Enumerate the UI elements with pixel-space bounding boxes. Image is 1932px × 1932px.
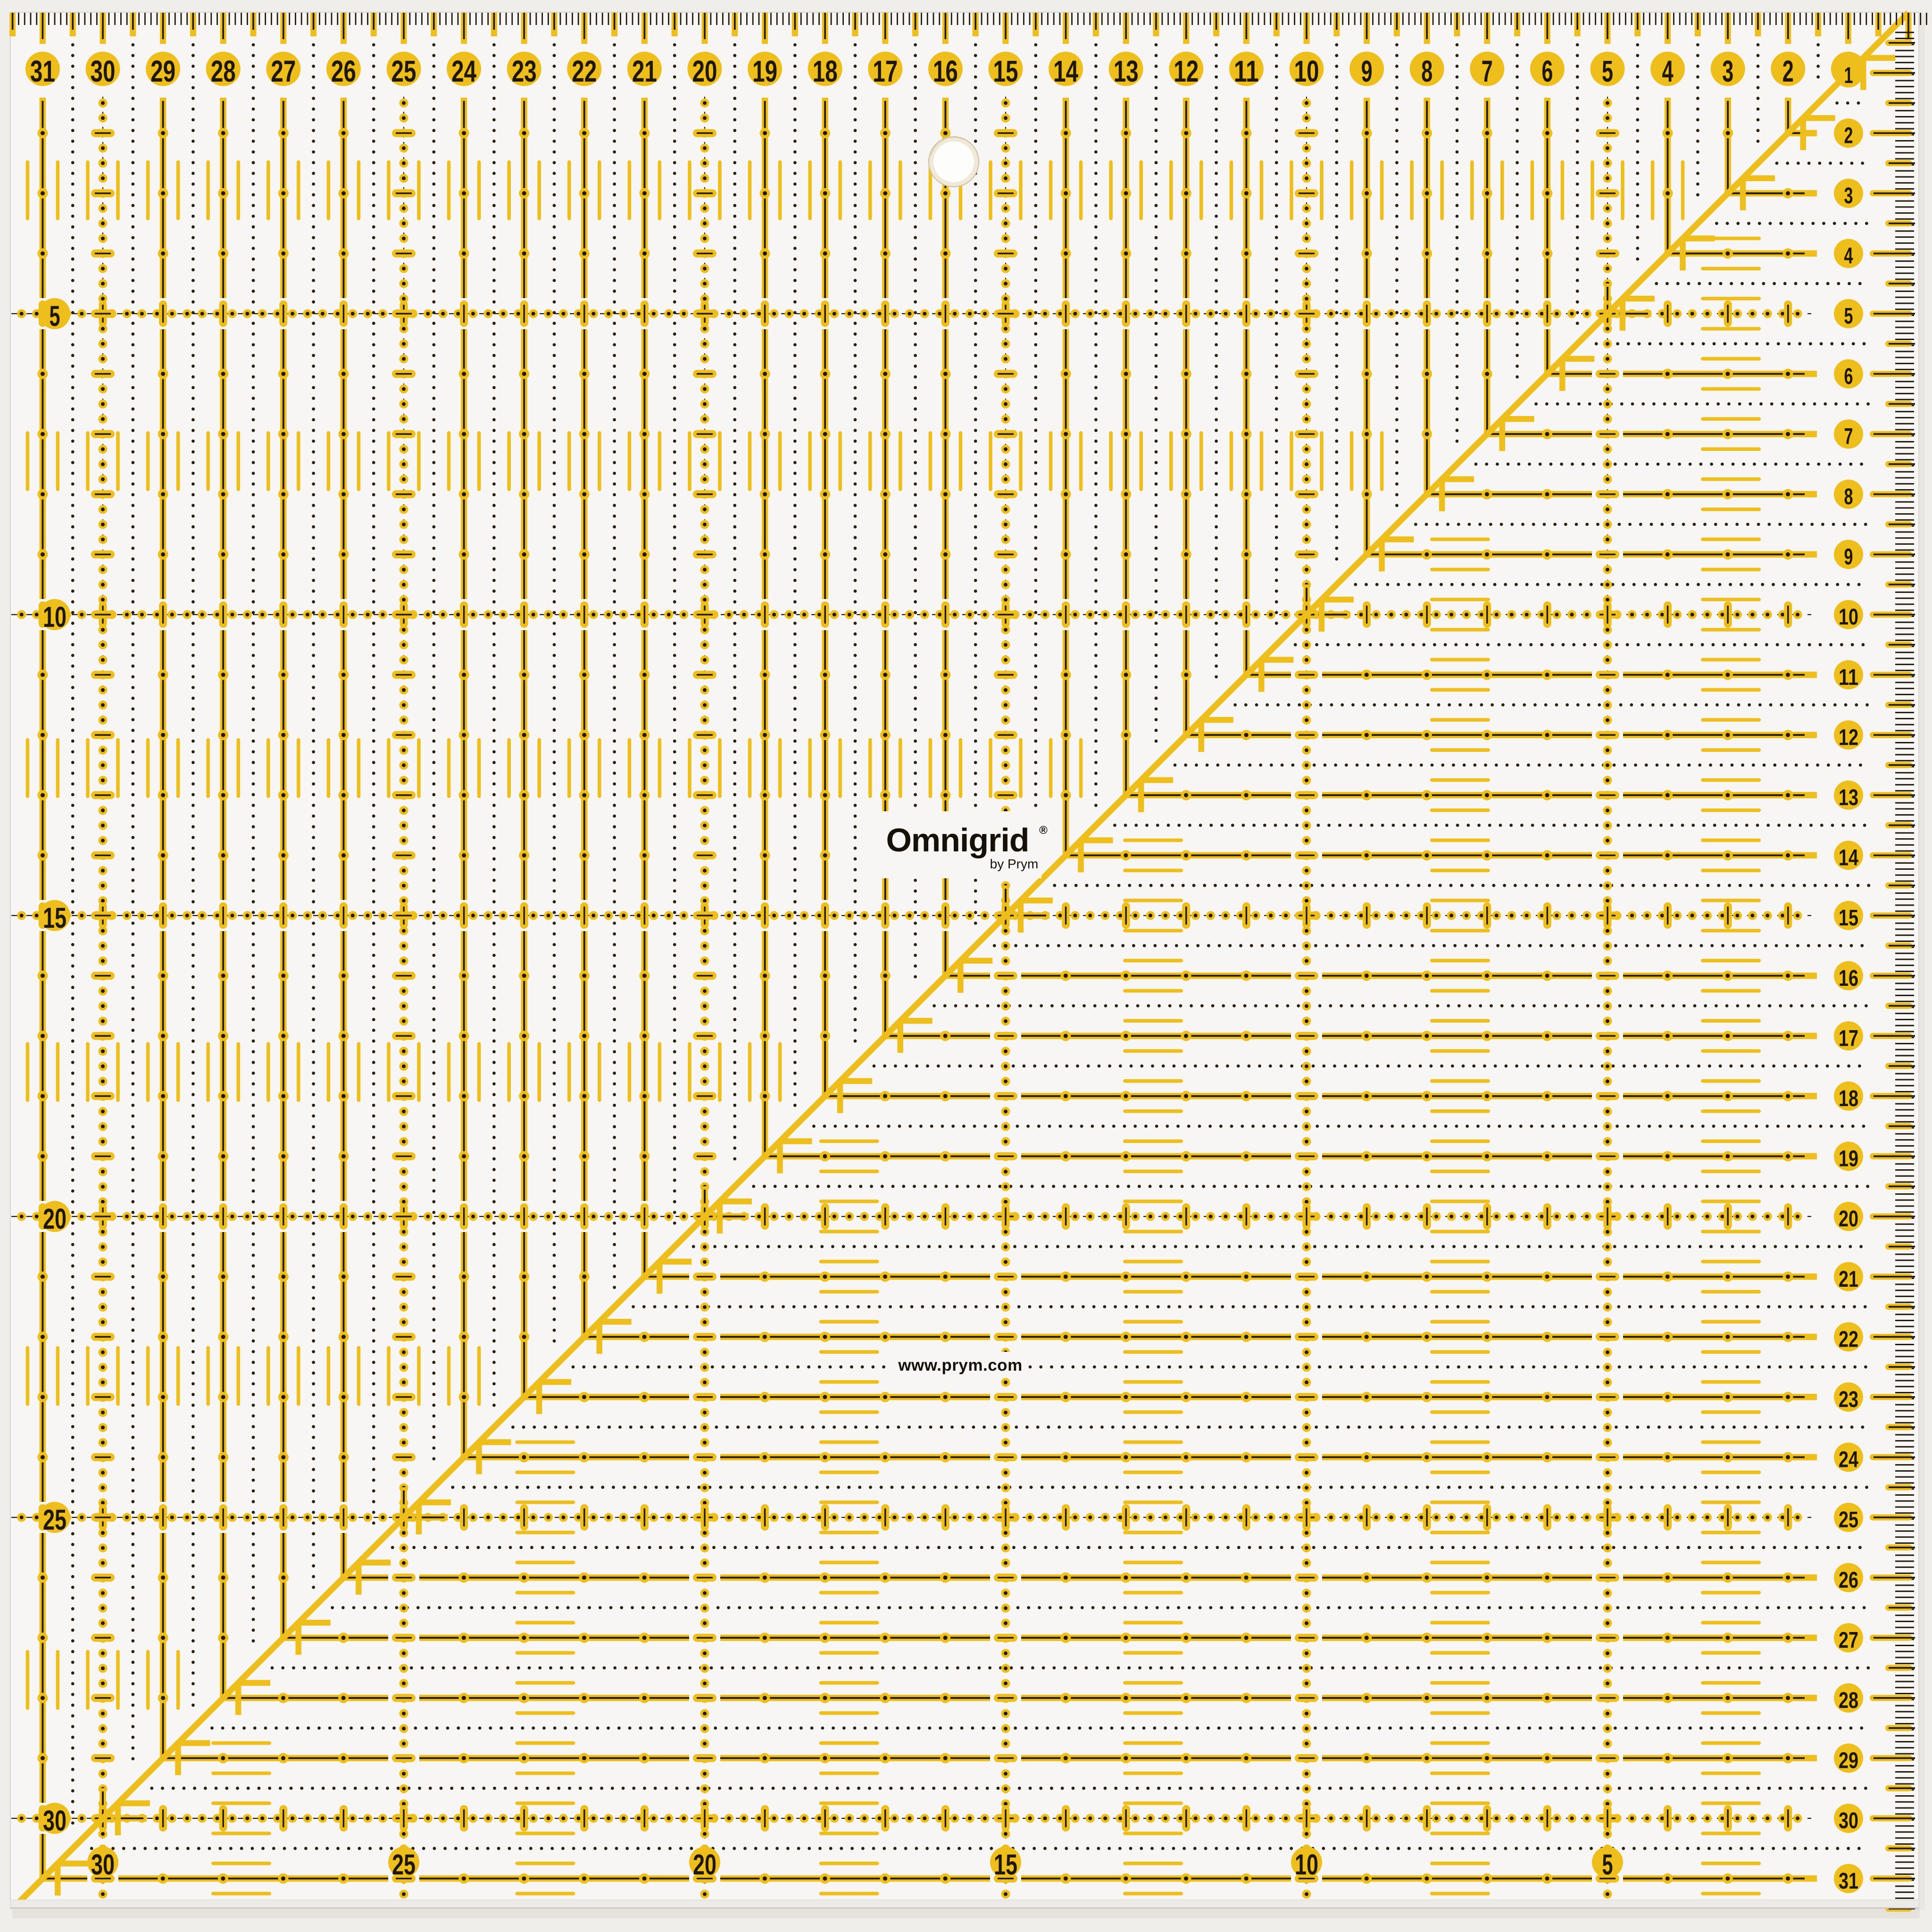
svg-text:14: 14 (1053, 54, 1078, 88)
svg-text:17: 17 (1839, 1026, 1858, 1051)
svg-text:15: 15 (994, 1849, 1017, 1881)
svg-text:1: 1 (1844, 63, 1853, 88)
svg-text:11: 11 (1234, 54, 1259, 88)
svg-text:14: 14 (1839, 846, 1858, 871)
svg-text:15: 15 (43, 902, 67, 934)
svg-text:9: 9 (1361, 54, 1373, 88)
svg-text:7: 7 (1482, 54, 1493, 88)
svg-text:30: 30 (1839, 1808, 1858, 1833)
svg-text:10: 10 (1295, 1849, 1318, 1881)
svg-text:10: 10 (1294, 54, 1319, 88)
svg-text:Omnigrid: Omnigrid (886, 822, 1029, 858)
svg-text:2: 2 (1844, 123, 1853, 148)
svg-text:www.prym.com: www.prym.com (898, 1356, 1022, 1374)
svg-text:4: 4 (1662, 54, 1674, 88)
svg-text:24: 24 (451, 54, 476, 88)
svg-text:3: 3 (1844, 183, 1853, 208)
svg-text:20: 20 (43, 1203, 67, 1235)
svg-text:13: 13 (1114, 54, 1139, 88)
svg-text:5: 5 (1844, 304, 1853, 329)
svg-text:26: 26 (1839, 1568, 1858, 1593)
svg-text:28: 28 (1839, 1688, 1858, 1713)
svg-text:20: 20 (693, 1849, 716, 1881)
svg-text:8: 8 (1421, 54, 1432, 88)
svg-text:20: 20 (1839, 1207, 1858, 1232)
svg-text:6: 6 (1541, 54, 1553, 88)
svg-text:18: 18 (1839, 1086, 1858, 1111)
svg-text:27: 27 (271, 54, 296, 88)
svg-text:25: 25 (391, 54, 416, 88)
svg-text:®: ® (1039, 824, 1048, 837)
svg-text:6: 6 (1844, 364, 1853, 389)
svg-text:30: 30 (43, 1805, 67, 1837)
svg-text:18: 18 (813, 54, 838, 88)
svg-text:10: 10 (1839, 605, 1858, 630)
svg-text:19: 19 (752, 54, 777, 88)
svg-text:23: 23 (1839, 1387, 1858, 1412)
svg-text:31: 31 (1839, 1869, 1858, 1894)
svg-text:19: 19 (1839, 1147, 1858, 1172)
svg-text:26: 26 (331, 54, 356, 88)
svg-text:11: 11 (1839, 665, 1858, 690)
svg-text:31: 31 (30, 54, 55, 88)
svg-text:22: 22 (1839, 1327, 1858, 1352)
svg-text:30: 30 (91, 54, 116, 88)
svg-text:23: 23 (512, 54, 537, 88)
svg-text:25: 25 (392, 1849, 416, 1881)
svg-text:25: 25 (1839, 1507, 1858, 1532)
svg-text:by Prym: by Prym (990, 857, 1039, 871)
svg-text:21: 21 (1839, 1267, 1858, 1292)
svg-text:20: 20 (692, 54, 717, 88)
svg-text:29: 29 (150, 54, 175, 88)
svg-text:29: 29 (1839, 1749, 1858, 1774)
svg-text:28: 28 (211, 54, 236, 88)
svg-text:24: 24 (1839, 1448, 1858, 1473)
svg-text:10: 10 (43, 601, 67, 633)
svg-text:5: 5 (1602, 1849, 1613, 1881)
svg-text:12: 12 (1839, 725, 1858, 750)
svg-text:8: 8 (1844, 484, 1853, 509)
svg-text:27: 27 (1839, 1628, 1858, 1653)
svg-text:15: 15 (1839, 906, 1858, 931)
svg-text:30: 30 (91, 1849, 115, 1881)
svg-text:5: 5 (50, 300, 60, 332)
svg-text:3: 3 (1722, 54, 1733, 88)
svg-text:2: 2 (1782, 54, 1794, 88)
svg-text:22: 22 (572, 54, 597, 88)
svg-text:5: 5 (1602, 54, 1613, 88)
svg-text:15: 15 (993, 54, 1018, 88)
svg-text:7: 7 (1844, 424, 1853, 449)
svg-text:16: 16 (933, 54, 958, 88)
svg-text:21: 21 (632, 54, 657, 88)
svg-text:25: 25 (43, 1504, 67, 1536)
svg-text:12: 12 (1174, 54, 1199, 88)
svg-text:9: 9 (1844, 545, 1853, 570)
svg-text:17: 17 (873, 54, 898, 88)
svg-text:16: 16 (1839, 966, 1858, 991)
svg-text:13: 13 (1839, 785, 1858, 810)
svg-text:4: 4 (1844, 244, 1853, 269)
